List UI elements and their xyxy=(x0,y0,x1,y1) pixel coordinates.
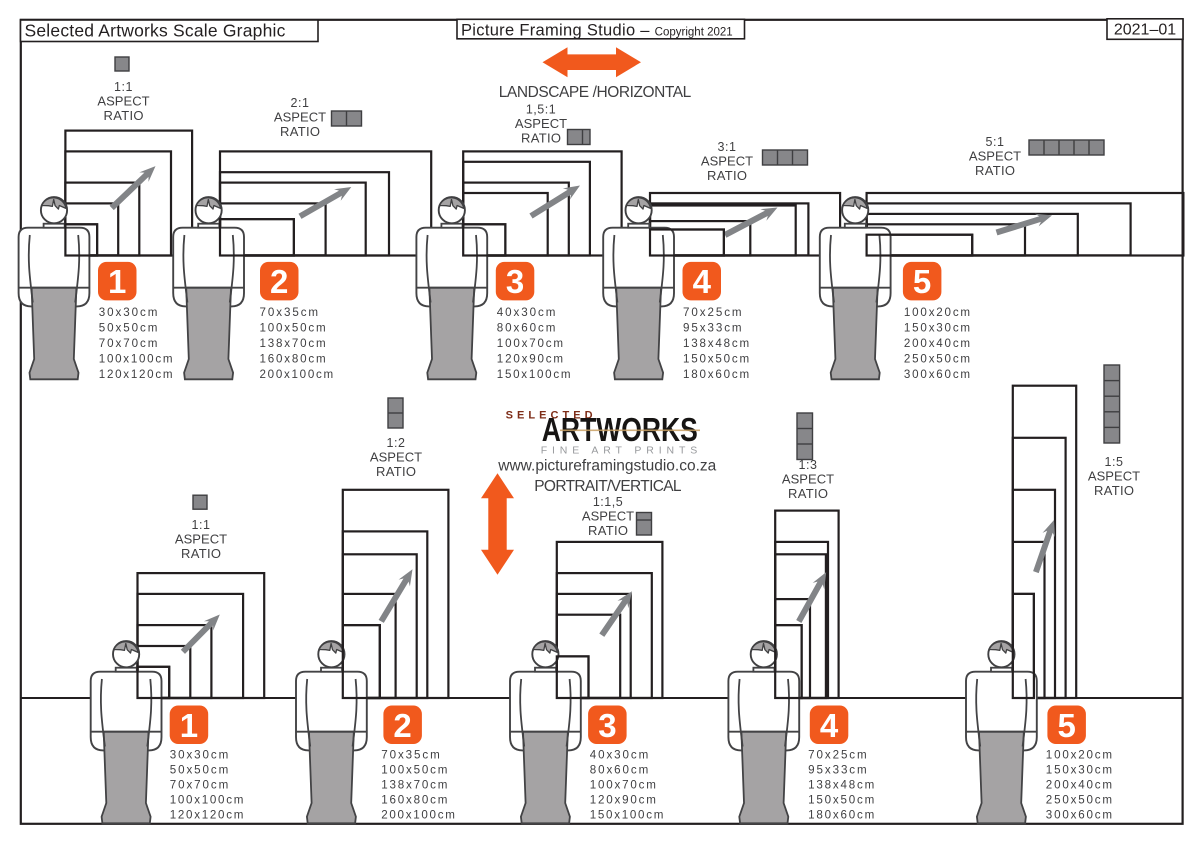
svg-text:160x80cm: 160x80cm xyxy=(381,794,447,807)
svg-text:LANDSCAPE /HORIZONTAL: LANDSCAPE /HORIZONTAL xyxy=(499,84,692,101)
svg-text:120x90cm: 120x90cm xyxy=(590,794,656,807)
svg-text:50x50cm: 50x50cm xyxy=(170,764,229,777)
svg-text:70x25cm: 70x25cm xyxy=(808,749,867,762)
svg-text:RATIO: RATIO xyxy=(280,124,320,139)
svg-text:3: 3 xyxy=(598,707,616,744)
svg-text:PORTRAIT/VERTICAL: PORTRAIT/VERTICAL xyxy=(534,478,682,495)
svg-text:150x50cm: 150x50cm xyxy=(683,353,749,366)
svg-text:ASPECT: ASPECT xyxy=(97,94,149,109)
svg-text:4: 4 xyxy=(820,707,839,744)
svg-text:ASPECT: ASPECT xyxy=(1088,469,1140,484)
svg-text:ASPECT: ASPECT xyxy=(274,110,326,125)
svg-text:70x25cm: 70x25cm xyxy=(683,306,742,319)
svg-text:138x70cm: 138x70cm xyxy=(260,337,326,350)
svg-text:50x50cm: 50x50cm xyxy=(99,322,158,335)
svg-text:1: 1 xyxy=(108,263,126,300)
svg-text:100x20cm: 100x20cm xyxy=(1046,749,1112,762)
svg-text:138x48cm: 138x48cm xyxy=(683,337,749,350)
svg-text:200x40cm: 200x40cm xyxy=(904,337,970,350)
svg-text:180x60cm: 180x60cm xyxy=(808,809,874,822)
svg-text:ASPECT: ASPECT xyxy=(175,532,227,547)
svg-text:RATIO: RATIO xyxy=(104,108,144,123)
svg-text:2: 2 xyxy=(393,707,411,744)
svg-text:1: 1 xyxy=(180,707,198,744)
svg-text:5:1: 5:1 xyxy=(986,135,1005,149)
svg-text:3:1: 3:1 xyxy=(718,140,737,154)
svg-text:1:1: 1:1 xyxy=(192,518,211,532)
svg-text:ASPECT: ASPECT xyxy=(782,472,834,487)
svg-text:150x30cm: 150x30cm xyxy=(904,322,970,335)
svg-text:100x70cm: 100x70cm xyxy=(497,337,563,350)
svg-text:ASPECT: ASPECT xyxy=(515,116,567,131)
svg-text:100x20cm: 100x20cm xyxy=(904,306,970,319)
svg-text:ASPECT: ASPECT xyxy=(701,154,753,169)
svg-text:1:1,5: 1:1,5 xyxy=(593,495,623,509)
svg-text:1:2: 1:2 xyxy=(387,436,406,450)
svg-text:RATIO: RATIO xyxy=(376,464,416,479)
svg-text:4: 4 xyxy=(693,263,712,300)
svg-text:300x60cm: 300x60cm xyxy=(904,368,970,381)
svg-text:70x70cm: 70x70cm xyxy=(170,779,229,792)
svg-text:FINE ART PRINTS: FINE ART PRINTS xyxy=(541,444,698,456)
svg-text:30x30cm: 30x30cm xyxy=(99,306,158,319)
svg-text:150x50cm: 150x50cm xyxy=(808,794,874,807)
svg-text:80x60cm: 80x60cm xyxy=(590,764,649,777)
svg-text:95x33cm: 95x33cm xyxy=(808,764,867,777)
svg-text:2:1: 2:1 xyxy=(291,96,310,110)
svg-text:RATIO: RATIO xyxy=(707,168,747,183)
svg-text:1,5:1: 1,5:1 xyxy=(526,103,556,117)
svg-text:ASPECT: ASPECT xyxy=(370,450,422,465)
svg-text:40x30cm: 40x30cm xyxy=(590,749,649,762)
svg-text:RATIO: RATIO xyxy=(588,523,628,538)
svg-text:138x48cm: 138x48cm xyxy=(808,779,874,792)
svg-text:1:1: 1:1 xyxy=(114,80,133,94)
svg-text:Selected Artworks Scale Graphi: Selected Artworks Scale Graphic xyxy=(25,21,286,41)
svg-text:150x30cm: 150x30cm xyxy=(1046,764,1112,777)
svg-text:100x70cm: 100x70cm xyxy=(590,779,656,792)
svg-text:RATIO: RATIO xyxy=(975,163,1015,178)
svg-text:ASPECT: ASPECT xyxy=(969,149,1021,164)
svg-text:80x60cm: 80x60cm xyxy=(497,322,556,335)
svg-text:ASPECT: ASPECT xyxy=(582,509,634,524)
svg-text:250x50cm: 250x50cm xyxy=(904,353,970,366)
svg-text:300x60cm: 300x60cm xyxy=(1046,809,1112,822)
svg-text:100x50cm: 100x50cm xyxy=(260,322,326,335)
svg-text:120x90cm: 120x90cm xyxy=(497,353,563,366)
svg-text:5: 5 xyxy=(1058,707,1076,744)
svg-text:40x30cm: 40x30cm xyxy=(497,306,556,319)
svg-text:250x50cm: 250x50cm xyxy=(1046,794,1112,807)
svg-text:180x60cm: 180x60cm xyxy=(683,368,749,381)
svg-text:95x33cm: 95x33cm xyxy=(683,322,742,335)
svg-text:www.pictureframingstudio.co.za: www.pictureframingstudio.co.za xyxy=(497,457,716,474)
svg-text:RATIO: RATIO xyxy=(521,131,561,146)
svg-text:100x50cm: 100x50cm xyxy=(381,764,447,777)
svg-text:70x70cm: 70x70cm xyxy=(99,337,158,350)
svg-text:30x30cm: 30x30cm xyxy=(170,749,229,762)
svg-text:5: 5 xyxy=(913,263,931,300)
svg-text:RATIO: RATIO xyxy=(1094,483,1134,498)
svg-text:3: 3 xyxy=(506,263,524,300)
svg-text:1:5: 1:5 xyxy=(1105,455,1124,469)
svg-text:RATIO: RATIO xyxy=(788,486,828,501)
svg-text:138x70cm: 138x70cm xyxy=(381,779,447,792)
svg-text:2021–01: 2021–01 xyxy=(1114,22,1176,39)
svg-text:70x35cm: 70x35cm xyxy=(381,749,440,762)
svg-text:RATIO: RATIO xyxy=(181,546,221,561)
svg-text:70x35cm: 70x35cm xyxy=(260,306,319,319)
svg-text:160x80cm: 160x80cm xyxy=(260,353,326,366)
svg-text:200x40cm: 200x40cm xyxy=(1046,779,1112,792)
svg-text:2: 2 xyxy=(270,263,288,300)
